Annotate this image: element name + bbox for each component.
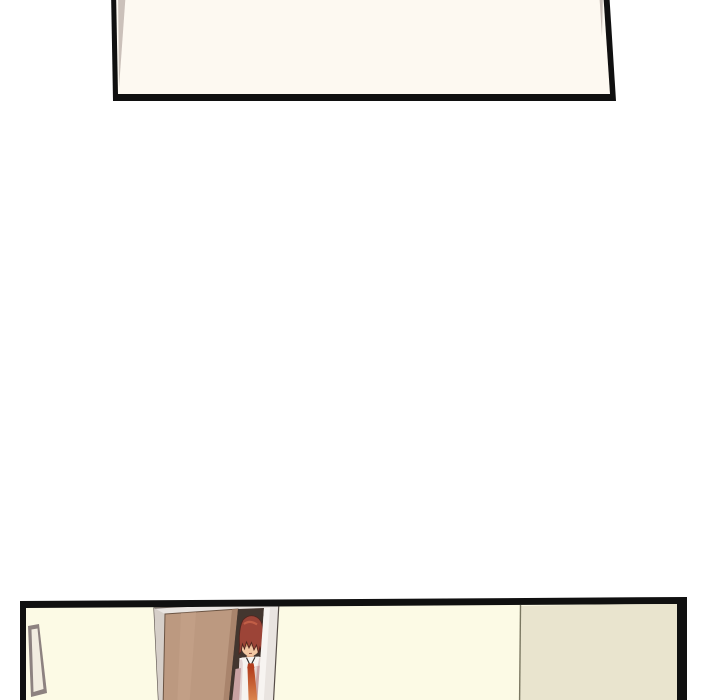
comic-page bbox=[0, 0, 720, 700]
tie-knot bbox=[247, 663, 254, 668]
panel-top-wall bbox=[116, 0, 610, 94]
panel-top bbox=[111, 0, 616, 101]
comic-art bbox=[0, 0, 720, 700]
side-wall bbox=[520, 603, 678, 700]
panel-bottom bbox=[20, 597, 687, 700]
